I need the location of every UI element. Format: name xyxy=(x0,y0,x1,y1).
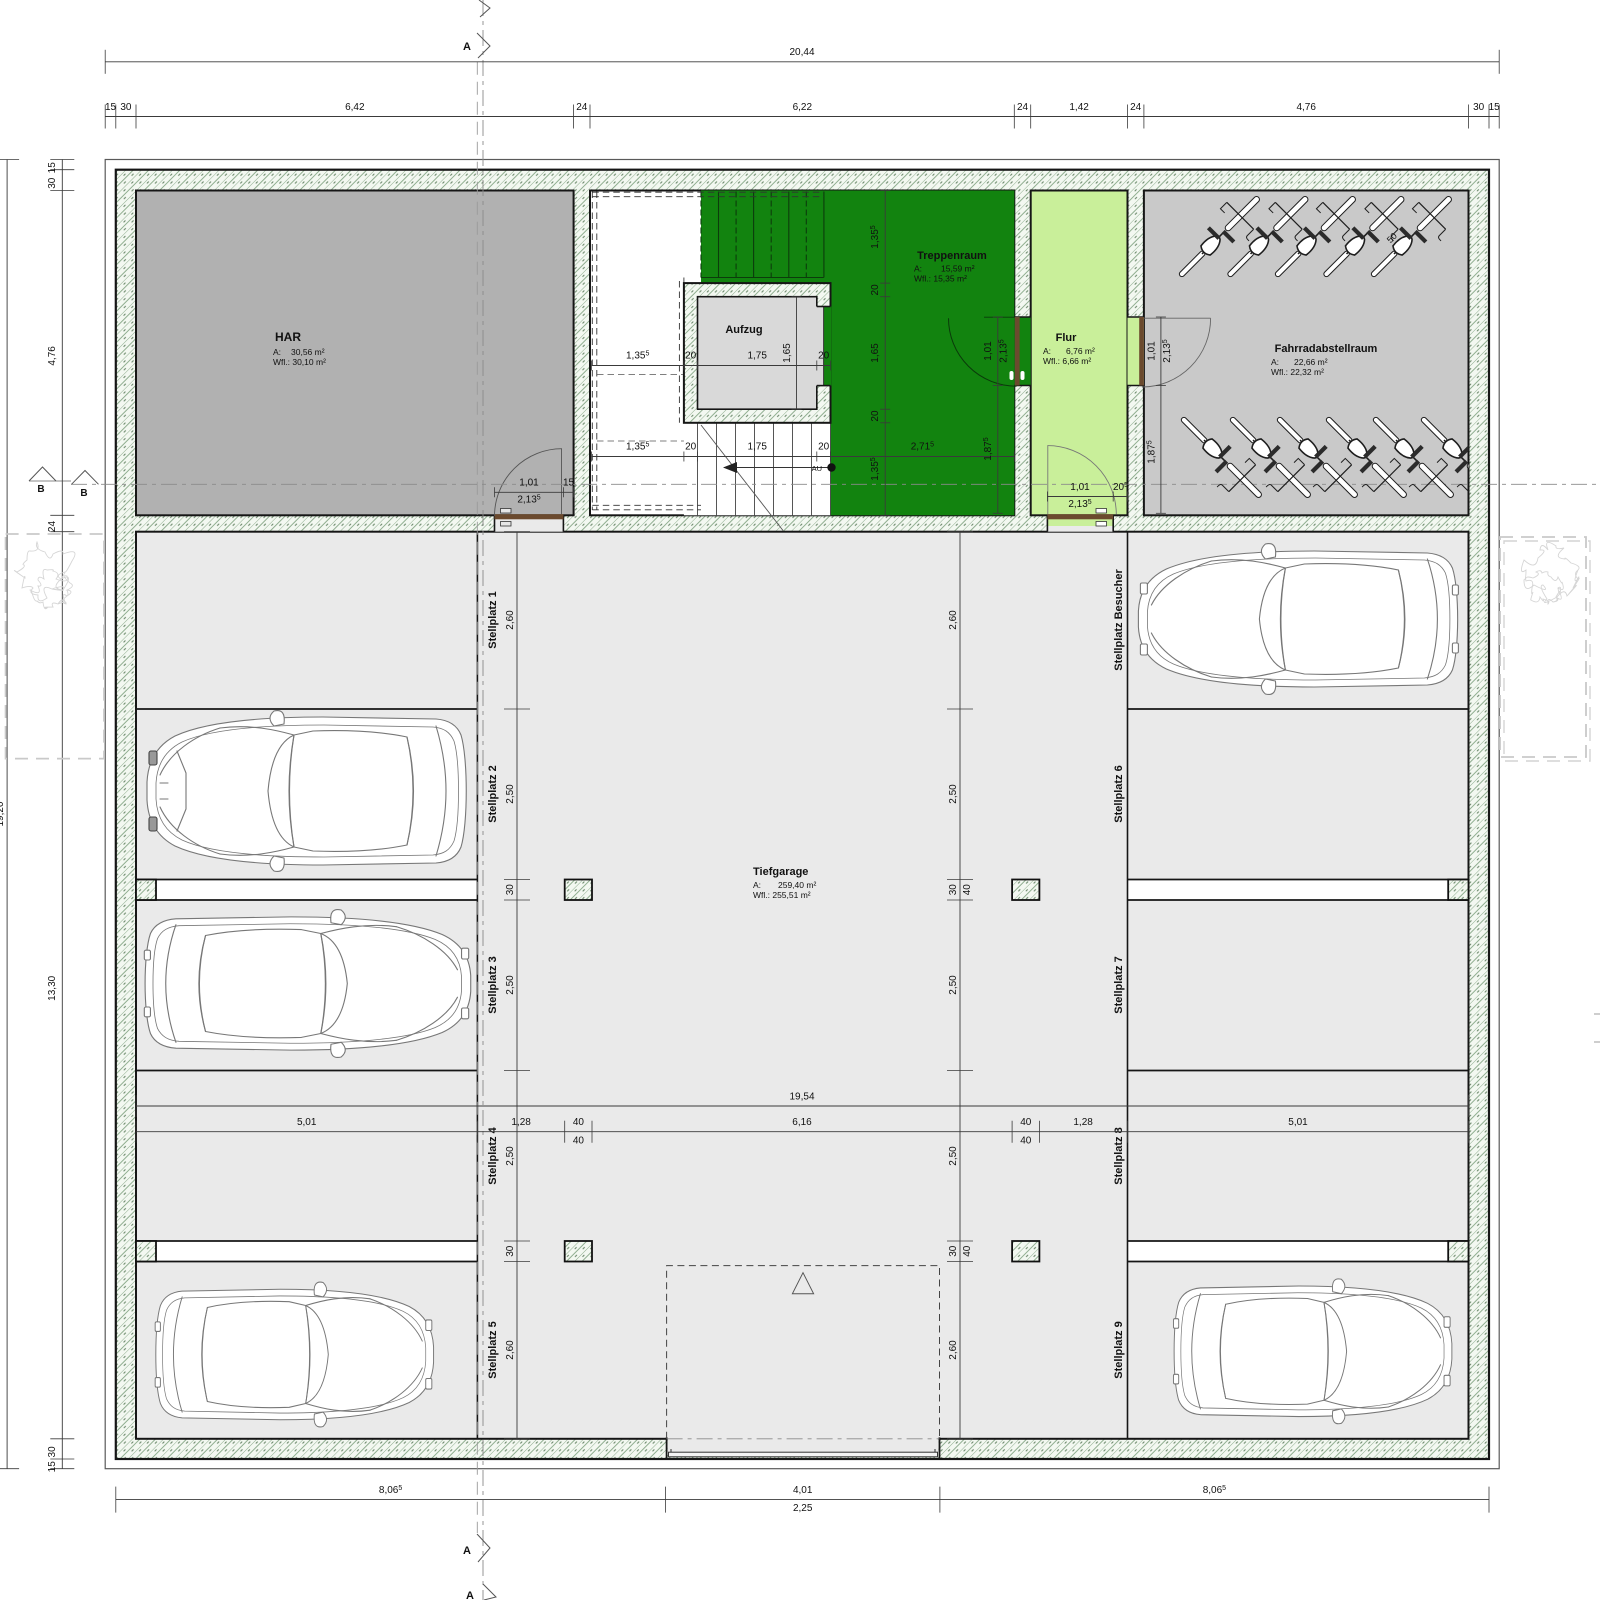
svg-text:Wfl.: 255,51 m²: Wfl.: 255,51 m² xyxy=(753,890,811,900)
svg-text:30: 30 xyxy=(505,884,516,896)
svg-text:1,75: 1,75 xyxy=(747,442,767,453)
svg-text:30: 30 xyxy=(505,1245,516,1257)
svg-text:6,76 m²: 6,76 m² xyxy=(1066,346,1095,356)
svg-text:2,25: 2,25 xyxy=(793,1503,813,1514)
svg-text:20,44: 20,44 xyxy=(789,47,814,58)
svg-text:Stellplatz Besucher: Stellplatz Besucher xyxy=(1113,569,1125,671)
svg-text:Stellplatz 8: Stellplatz 8 xyxy=(1113,1127,1125,1184)
svg-text:Stellplatz 4: Stellplatz 4 xyxy=(487,1126,499,1184)
svg-text:A: A xyxy=(466,1590,474,1600)
svg-text:15: 15 xyxy=(47,162,58,174)
svg-text:Stellplatz 9: Stellplatz 9 xyxy=(1113,1321,1125,1378)
svg-text:30: 30 xyxy=(948,884,959,896)
svg-text:4,76: 4,76 xyxy=(1296,102,1316,113)
svg-text:6,16: 6,16 xyxy=(792,1117,812,1128)
svg-text:24: 24 xyxy=(1130,102,1142,113)
svg-text:Stellplatz 7: Stellplatz 7 xyxy=(1113,956,1125,1013)
svg-text:40: 40 xyxy=(573,1117,585,1128)
svg-text:A:: A: xyxy=(914,264,922,274)
svg-text:1,01: 1,01 xyxy=(519,478,539,489)
svg-text:Stellplatz 2: Stellplatz 2 xyxy=(487,765,499,822)
svg-text:40: 40 xyxy=(1020,1136,1032,1147)
svg-text:40: 40 xyxy=(1020,1117,1032,1128)
svg-text:Aufzug: Aufzug xyxy=(725,324,762,336)
svg-text:AU: AU xyxy=(812,464,822,473)
svg-text:1,28: 1,28 xyxy=(511,1117,531,1128)
svg-text:40: 40 xyxy=(962,884,973,896)
svg-text:1,75: 1,75 xyxy=(747,351,767,362)
svg-text:1,28: 1,28 xyxy=(1073,1117,1093,1128)
svg-text:30: 30 xyxy=(120,102,132,113)
svg-text:24: 24 xyxy=(47,521,58,533)
svg-text:B: B xyxy=(37,484,44,495)
svg-text:2,60: 2,60 xyxy=(505,610,516,630)
svg-text:20: 20 xyxy=(818,351,830,362)
svg-text:1,42: 1,42 xyxy=(1069,102,1089,113)
svg-text:13,30: 13,30 xyxy=(47,975,58,1000)
svg-text:30: 30 xyxy=(1473,102,1485,113)
svg-text:Stellplatz 1: Stellplatz 1 xyxy=(487,591,499,648)
svg-text:1,65: 1,65 xyxy=(870,343,881,363)
svg-text:B: B xyxy=(80,488,87,499)
svg-text:20: 20 xyxy=(685,351,697,362)
svg-text:2,60: 2,60 xyxy=(948,1340,959,1360)
svg-text:Stellplatz 5: Stellplatz 5 xyxy=(487,1321,499,1378)
svg-text:1,01: 1,01 xyxy=(1070,482,1090,493)
svg-text:Stellplatz 3: Stellplatz 3 xyxy=(487,956,499,1013)
svg-text:5,01: 5,01 xyxy=(297,1117,317,1128)
svg-text:A: A xyxy=(463,41,471,53)
svg-text:19,20: 19,20 xyxy=(0,801,6,826)
svg-text:Wfl.: 6,66 m²: Wfl.: 6,66 m² xyxy=(1043,356,1091,366)
svg-text:Stellplatz 6: Stellplatz 6 xyxy=(1113,765,1125,822)
svg-text:6,22: 6,22 xyxy=(793,102,813,113)
svg-text:6,42: 6,42 xyxy=(345,102,365,113)
svg-text:Wfl.: 30,10 m²: Wfl.: 30,10 m² xyxy=(273,357,326,367)
svg-text:24: 24 xyxy=(1017,102,1029,113)
svg-text:2,60: 2,60 xyxy=(948,610,959,630)
svg-text:HAR: HAR xyxy=(275,330,301,344)
svg-text:Tiefgarage: Tiefgarage xyxy=(753,866,808,878)
svg-text:20: 20 xyxy=(870,410,881,422)
svg-text:1,01: 1,01 xyxy=(1147,341,1158,361)
svg-text:20: 20 xyxy=(685,442,697,453)
svg-text:A: A xyxy=(463,1545,471,1557)
svg-text:259,40 m²: 259,40 m² xyxy=(778,880,816,890)
svg-text:30,56 m²: 30,56 m² xyxy=(291,347,325,357)
svg-text:20: 20 xyxy=(870,284,881,296)
svg-text:A:: A: xyxy=(1271,357,1279,367)
svg-text:15,59 m²: 15,59 m² xyxy=(941,264,975,274)
svg-text:2,50: 2,50 xyxy=(948,1146,959,1166)
svg-text:30: 30 xyxy=(948,1245,959,1257)
svg-text:15: 15 xyxy=(1489,102,1501,113)
svg-text:Wfl.: 15,35 m²: Wfl.: 15,35 m² xyxy=(914,274,967,284)
svg-text:4,01: 4,01 xyxy=(793,1485,813,1496)
svg-text:2,50: 2,50 xyxy=(505,975,516,995)
svg-text:Treppenraum: Treppenraum xyxy=(917,250,987,262)
svg-text:2,50: 2,50 xyxy=(948,784,959,804)
svg-text:A:: A: xyxy=(273,347,281,357)
svg-text:A:: A: xyxy=(1043,346,1051,356)
svg-text:30: 30 xyxy=(47,177,58,189)
svg-text:15: 15 xyxy=(105,102,117,113)
svg-text:4,76: 4,76 xyxy=(47,346,58,366)
svg-text:2,60: 2,60 xyxy=(505,1340,516,1360)
svg-text:15: 15 xyxy=(47,1461,58,1473)
svg-text:Wfl.: 22,32 m²: Wfl.: 22,32 m² xyxy=(1271,367,1324,377)
svg-text:19,54: 19,54 xyxy=(789,1092,814,1103)
svg-text:Fahrradabstellraum: Fahrradabstellraum xyxy=(1275,343,1378,355)
svg-text:22,66 m²: 22,66 m² xyxy=(1294,357,1328,367)
svg-text:1,01: 1,01 xyxy=(983,341,994,361)
svg-text:30: 30 xyxy=(47,1446,58,1458)
svg-text:2,50: 2,50 xyxy=(505,784,516,804)
svg-text:24: 24 xyxy=(576,102,588,113)
svg-text:40: 40 xyxy=(573,1136,585,1147)
svg-text:20: 20 xyxy=(818,442,830,453)
svg-text:2,50: 2,50 xyxy=(505,1146,516,1166)
svg-text:15: 15 xyxy=(563,478,575,489)
svg-text:A:: A: xyxy=(753,880,761,890)
svg-text:5,01: 5,01 xyxy=(1288,1117,1308,1128)
svg-text:1,65: 1,65 xyxy=(782,343,793,363)
svg-text:40: 40 xyxy=(962,1245,973,1257)
svg-text:2,50: 2,50 xyxy=(948,975,959,995)
svg-text:Flur: Flur xyxy=(1056,332,1077,344)
